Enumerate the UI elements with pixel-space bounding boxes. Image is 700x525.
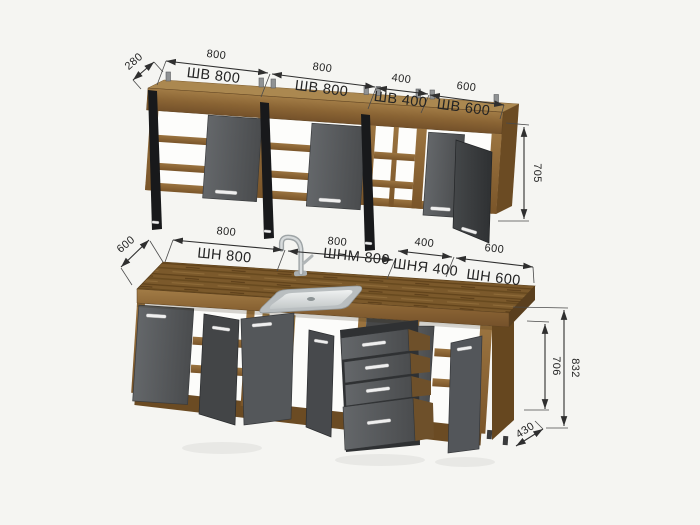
drawer-stack — [340, 320, 434, 452]
drawer-4 — [343, 398, 415, 450]
base-total-height-dim: 832 — [569, 358, 581, 378]
upper-dim-1-width: 800 — [206, 48, 227, 62]
upper-open-door-right — [453, 140, 492, 243]
drawing-canvas: 800 ШВ 800 800 ШВ 800 400 ШВ 400 600 ШВ … — [0, 0, 700, 525]
upper-dim-3-width: 400 — [391, 72, 412, 86]
base-left-closed-door — [133, 305, 194, 404]
upper-dim-4-width: 600 — [456, 80, 477, 94]
kitchen-dimension-drawing: 800 ШВ 800 800 ШВ 800 400 ШВ 400 600 ШВ … — [0, 0, 700, 525]
base-inner-height-dim: 706 — [550, 356, 562, 376]
upper-height-dim: 705 — [531, 163, 543, 183]
upper-dim-2-width: 800 — [312, 61, 333, 75]
lower-dim-4-width: 600 — [484, 242, 505, 256]
lower-dim-1-width: 800 — [216, 225, 237, 239]
lower-dim-3-width: 400 — [414, 236, 435, 250]
